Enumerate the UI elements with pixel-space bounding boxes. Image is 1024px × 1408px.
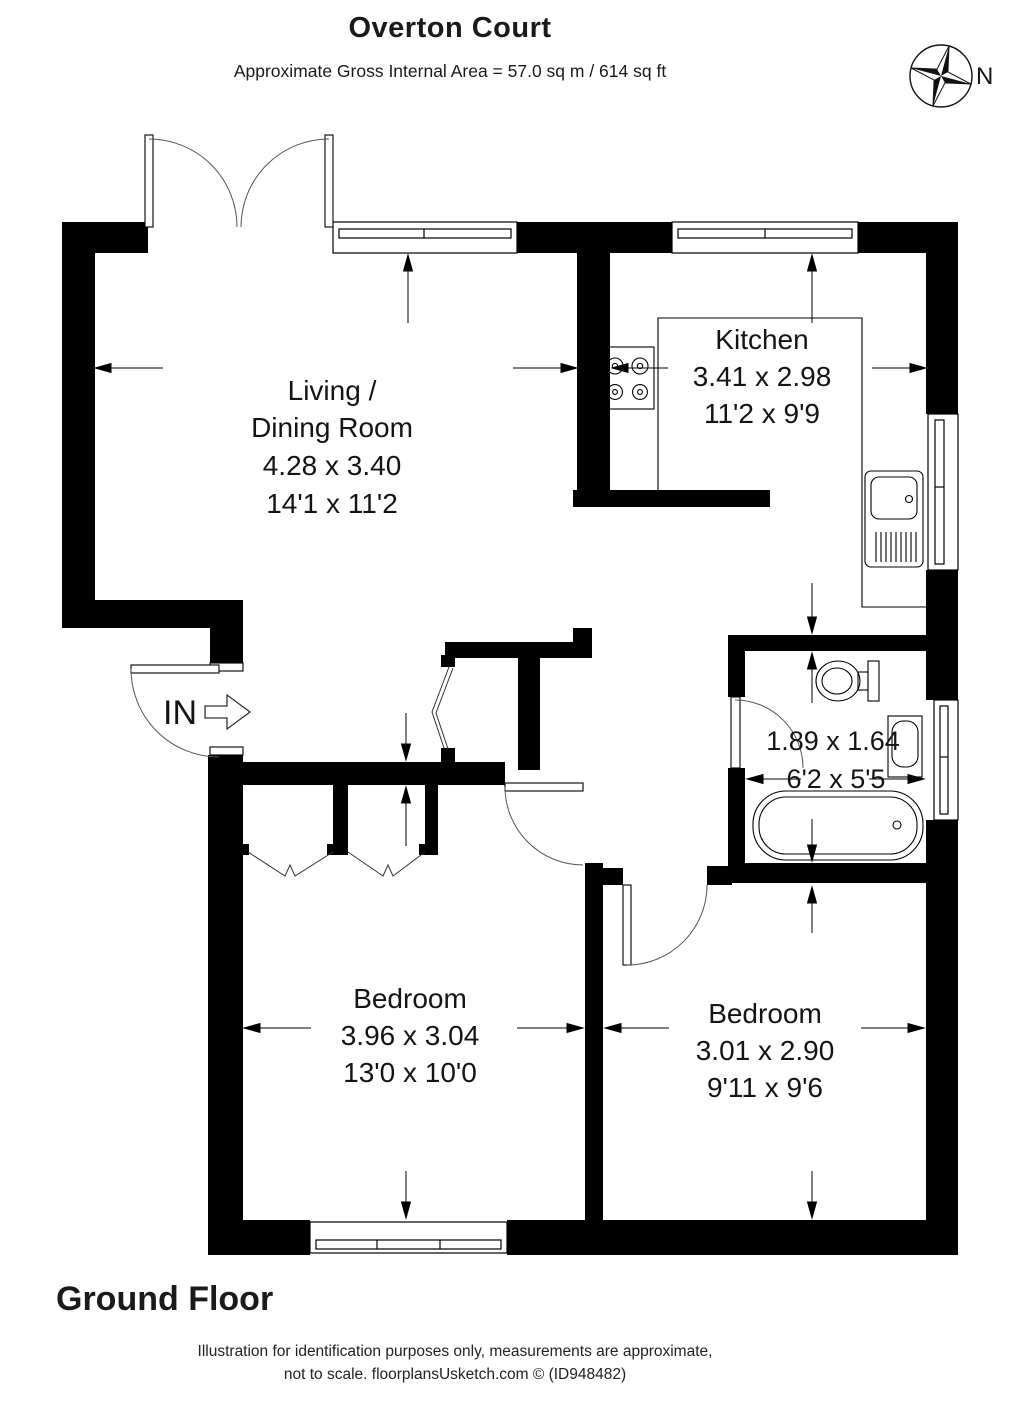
living-room-window xyxy=(333,222,517,253)
kitchen-imperial: 11'2 x 9'9 xyxy=(704,398,820,429)
french-doors xyxy=(145,135,333,227)
bathroom-metric: 1.89 x 1.64 xyxy=(766,726,900,756)
living-room-name-1: Living / xyxy=(288,375,377,406)
bathroom-window xyxy=(934,700,958,820)
bedroom1-metric: 3.96 x 3.04 xyxy=(341,1020,480,1051)
footer-disclaimer-line1: Illustration for identification purposes… xyxy=(55,1340,855,1363)
footer-disclaimer-line2: not to scale. floorplansUsketch.com © (I… xyxy=(55,1363,855,1386)
entry-marker: IN xyxy=(163,694,250,732)
bathroom-imperial: 6'2 x 5'5 xyxy=(787,764,886,794)
kitchen-label: Kitchen 3.41 x 2.98 11'2 x 9'9 xyxy=(693,324,832,429)
bedroom2-name: Bedroom xyxy=(708,998,822,1029)
toilet-icon xyxy=(816,661,879,701)
bedroom1-name: Bedroom xyxy=(353,983,467,1014)
living-room-name-2: Dining Room xyxy=(251,412,413,443)
bedroom2-metric: 3.01 x 2.90 xyxy=(696,1035,835,1066)
bathroom-label: 1.89 x 1.64 6'2 x 5'5 xyxy=(766,726,900,794)
bedroom1-window xyxy=(310,1222,507,1253)
kitchen-sink-icon xyxy=(865,471,923,567)
bathtub-icon xyxy=(753,791,923,860)
wardrobe-doors xyxy=(248,852,425,876)
living-room-imperial: 14'1 x 11'2 xyxy=(266,488,398,519)
floor-name: Ground Floor xyxy=(56,1280,273,1319)
entry-arrow-icon xyxy=(205,695,250,729)
entry-in-label: IN xyxy=(163,694,197,732)
kitchen-side-window xyxy=(928,414,958,570)
bedroom1-door xyxy=(505,783,583,865)
hall-door xyxy=(432,667,453,749)
bedroom2-imperial: 9'11 x 9'6 xyxy=(707,1072,823,1103)
floorplan-drawing: N xyxy=(0,0,1024,1408)
living-room-label: Living / Dining Room 4.28 x 3.40 14'1 x … xyxy=(251,375,413,519)
bedroom2-label: Bedroom 3.01 x 2.90 9'11 x 9'6 xyxy=(696,998,835,1103)
compass-icon: N xyxy=(910,45,993,107)
kitchen-metric: 3.41 x 2.98 xyxy=(693,361,832,392)
bedroom2-door xyxy=(623,885,707,965)
kitchen-top-window xyxy=(672,222,858,253)
compass-north-label: N xyxy=(976,63,993,90)
bedroom1-label: Bedroom 3.96 x 3.04 13'0 x 10'0 xyxy=(341,983,480,1088)
kitchen-name: Kitchen xyxy=(715,324,808,355)
floorplan-page: Overton Court Approximate Gross Internal… xyxy=(0,0,1024,1408)
living-room-metric: 4.28 x 3.40 xyxy=(263,450,402,481)
bedroom1-imperial: 13'0 x 10'0 xyxy=(343,1057,477,1088)
